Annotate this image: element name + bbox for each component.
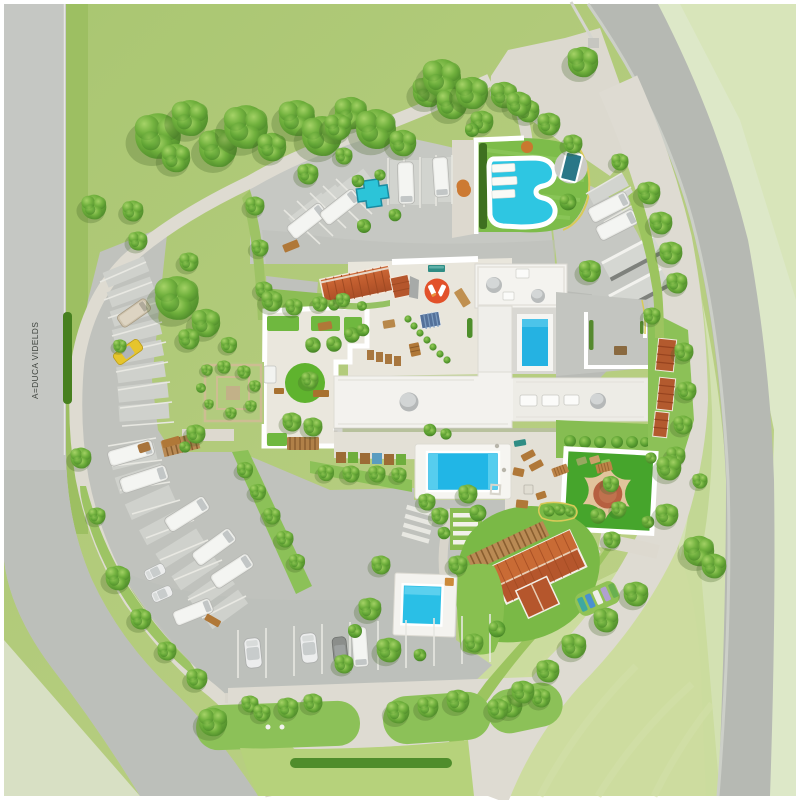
svg-text:A=DUCA VIDELDS: A=DUCA VIDELDS: [31, 322, 40, 399]
